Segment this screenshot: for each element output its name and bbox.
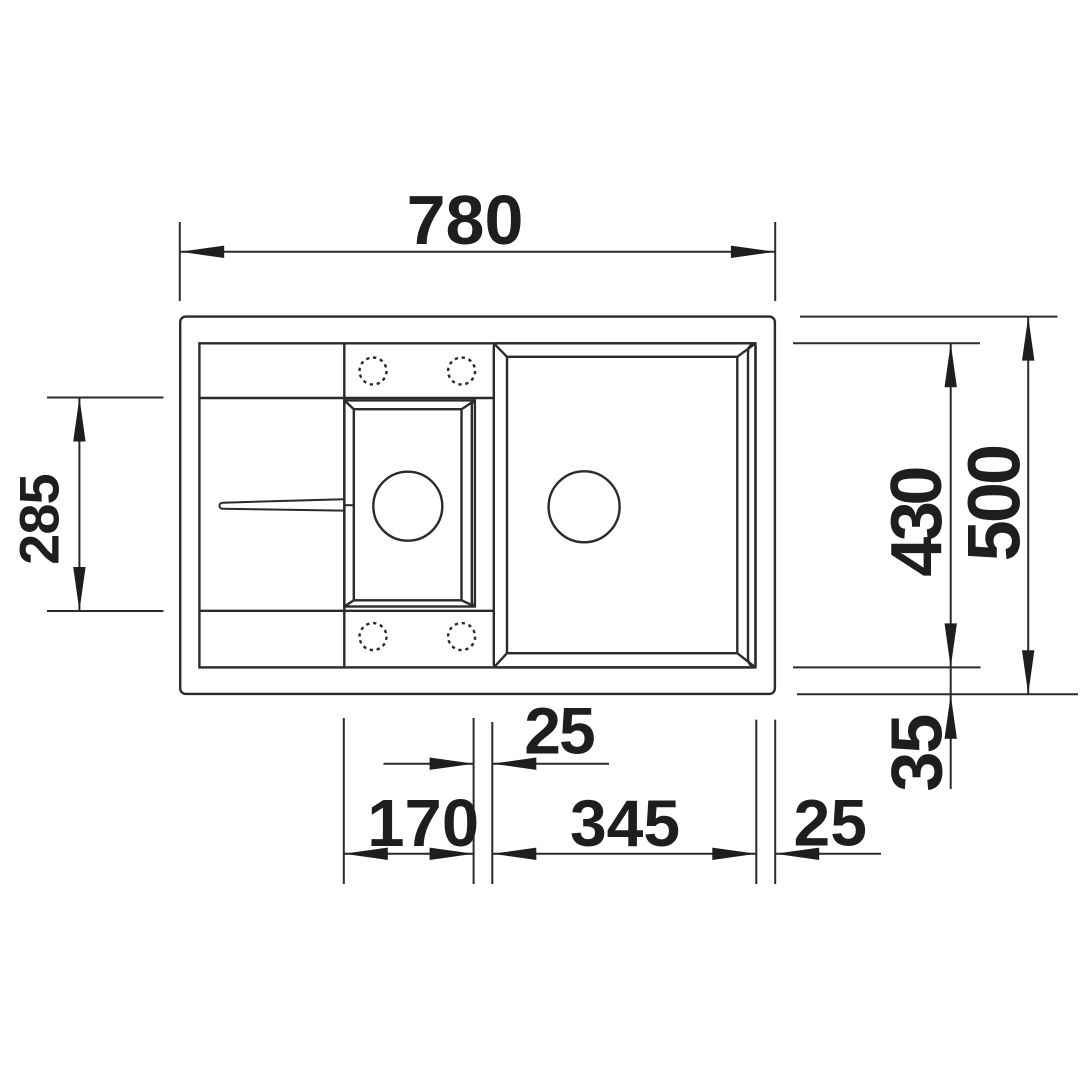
svg-text:430: 430 (877, 468, 957, 577)
svg-text:780: 780 (407, 181, 524, 259)
svg-text:25: 25 (524, 694, 594, 768)
svg-text:500: 500 (953, 446, 1036, 561)
svg-text:345: 345 (570, 786, 680, 860)
svg-text:170: 170 (367, 786, 479, 861)
svg-text:35: 35 (878, 715, 958, 792)
svg-text:25: 25 (793, 786, 866, 860)
svg-text:285: 285 (8, 474, 71, 564)
